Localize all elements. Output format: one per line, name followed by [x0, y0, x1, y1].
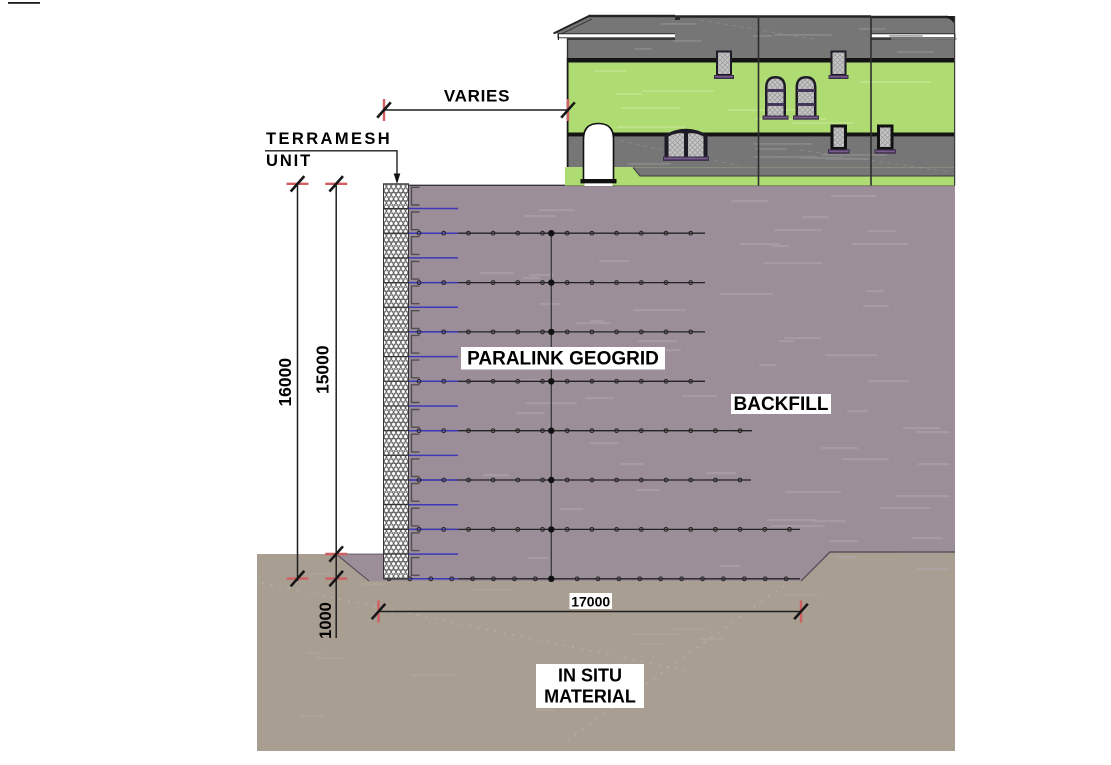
svg-text:BACKFILL: BACKFILL [734, 394, 829, 415]
svg-text:1000: 1000 [317, 602, 335, 639]
svg-text:MATERIAL: MATERIAL [544, 687, 636, 707]
svg-text:15000: 15000 [313, 345, 333, 394]
svg-text:TERRAMESH: TERRAMESH [266, 130, 392, 148]
svg-text:16000: 16000 [275, 358, 295, 407]
svg-text:17000: 17000 [571, 593, 610, 609]
svg-text:IN SITU: IN SITU [558, 666, 622, 686]
svg-text:PARALINK GEOGRID: PARALINK GEOGRID [467, 349, 659, 370]
svg-text:VARIES: VARIES [444, 87, 510, 106]
svg-text:UNIT: UNIT [266, 152, 312, 170]
